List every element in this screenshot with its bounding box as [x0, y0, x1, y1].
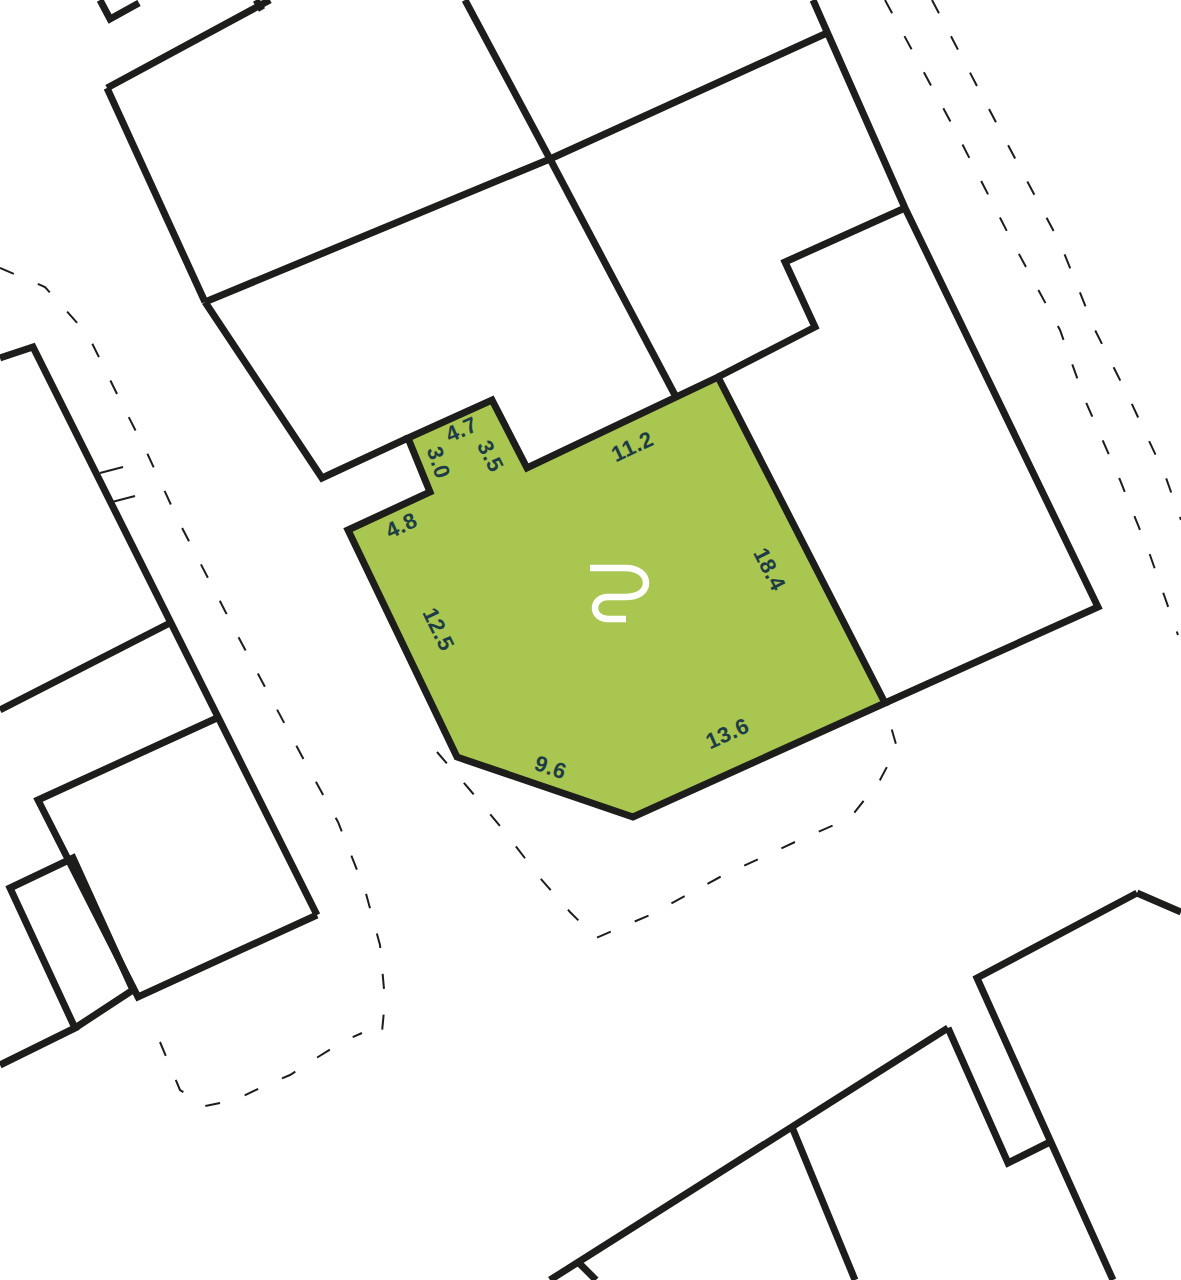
boundary-line	[205, 33, 827, 302]
boundary-line	[578, 1262, 596, 1280]
boundary-line	[718, 208, 905, 377]
dashed-boundary-line	[932, 0, 1181, 520]
map-viewport: 4.73.53.011.24.818.412.59.613.6	[0, 0, 1181, 1280]
map-canvas: 4.73.53.011.24.818.412.59.613.6	[0, 0, 1181, 1280]
boundary-line	[948, 1028, 1050, 1163]
boundary-line	[550, 159, 676, 397]
boundary-line	[0, 623, 170, 710]
dashed-boundary-line	[160, 1033, 362, 1106]
boundary-line	[107, 0, 270, 88]
boundary-line	[465, 0, 550, 159]
boundary-line	[977, 893, 1137, 1280]
boundary-line	[813, 0, 1098, 703]
boundary-line	[107, 88, 205, 302]
boundary-line	[100, 0, 139, 19]
survey-tick	[112, 496, 135, 502]
boundary-line	[550, 1028, 948, 1280]
dashed-boundary-line	[0, 268, 385, 1032]
boundary-line	[0, 858, 133, 1065]
boundary-line	[205, 302, 408, 478]
dashed-boundary-line	[885, 0, 1178, 635]
boundary-line	[1137, 893, 1181, 912]
survey-tick	[100, 467, 123, 473]
boundary-line	[792, 1127, 855, 1280]
boundary-line	[38, 718, 317, 997]
